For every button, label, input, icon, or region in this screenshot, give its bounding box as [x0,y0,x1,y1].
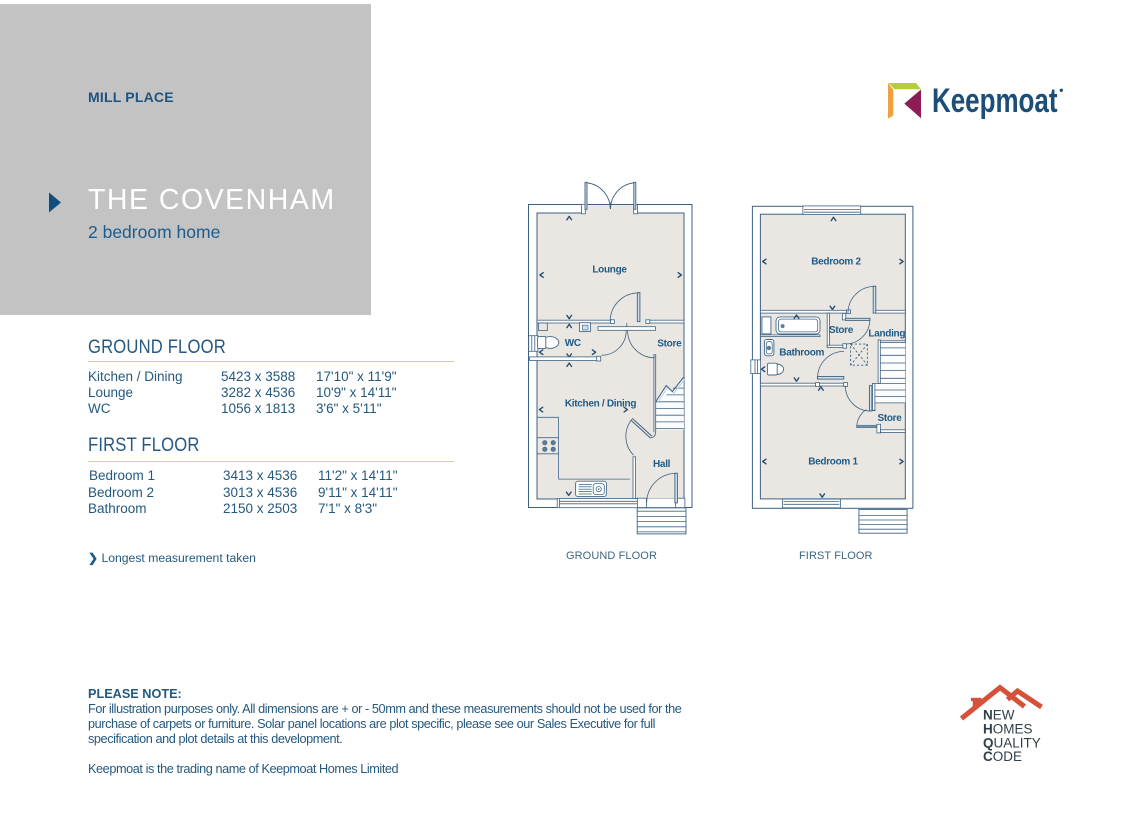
svg-text:WC: WC [565,338,581,349]
svg-text:Lounge: Lounge [592,265,627,276]
svg-text:Bathroom: Bathroom [779,348,824,359]
svg-text:Landing: Landing [868,328,905,339]
svg-text:HOMES: HOMES [983,721,1033,736]
svg-text:Store: Store [657,338,682,349]
svg-text:Hall: Hall [653,459,671,470]
svg-text:GROUND FLOOR: GROUND FLOOR [566,550,657,562]
svg-text:FIRST FLOOR: FIRST FLOOR [799,550,873,562]
svg-text:Store: Store [829,325,854,336]
svg-text:Bedroom 2: Bedroom 2 [811,257,861,268]
svg-text:Bedroom 1: Bedroom 1 [808,457,858,468]
svg-text:CODE: CODE [983,749,1022,764]
svg-text:NEW: NEW [983,708,1015,723]
svg-text:QUALITY: QUALITY [983,735,1041,750]
svg-text:Keepmoat: Keepmoat [932,82,1058,120]
svg-text:Store: Store [877,413,902,424]
